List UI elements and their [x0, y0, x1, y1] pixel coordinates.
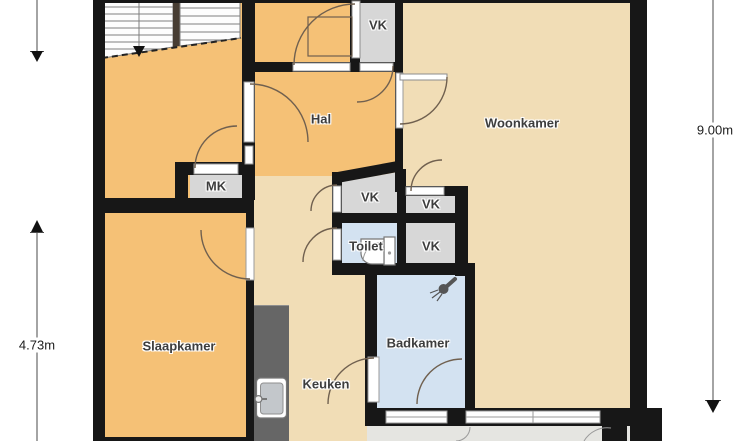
dimension-arrow-icon: [706, 400, 720, 413]
dimension-label-height: 9.00m: [695, 123, 735, 138]
room-label-toilet: Toilet: [349, 239, 383, 254]
dimension-arrow-icon: [31, 220, 43, 232]
room-label-woonkamer: Woonkamer: [485, 116, 559, 131]
room-label-hal: Hal: [311, 112, 331, 127]
badkamer-door: [368, 357, 379, 402]
stairs-hal-door: [244, 82, 254, 142]
vk-nw-door: [333, 186, 341, 212]
mk-door: [194, 164, 238, 174]
room-label-slaapkamer: Slaapkamer: [143, 339, 216, 354]
toilet-door: [333, 229, 341, 260]
room-label-mk: MK: [206, 179, 226, 194]
top-room-door: [293, 63, 350, 71]
slaapkamer-floor: [105, 213, 246, 441]
kitchen-sink-icon: [255, 378, 286, 418]
floor-plan-svg: [0, 0, 750, 441]
room-label-badkamer: Badkamer: [387, 336, 450, 351]
room-label-vk-ne: VK: [422, 197, 440, 212]
kitchen-counter: [254, 305, 289, 441]
room-label-vk-nw: VK: [361, 190, 379, 205]
room-label-vk-se: VK: [422, 239, 440, 254]
stairs-hal-sidelight: [245, 146, 253, 164]
vk-top-door: [360, 63, 393, 71]
window: [466, 411, 600, 423]
dimension-label-width: 4.73m: [17, 338, 57, 353]
slaapkamer-door: [246, 228, 254, 280]
dimension-arrow-icon: [31, 51, 43, 62]
floor-plan: Hal Woonkamer VK MK VK VK Toilet VK Slaa…: [0, 0, 750, 441]
room-label-vk-top: VK: [369, 18, 387, 33]
window: [386, 411, 447, 423]
hal-woonkamer-door: [396, 73, 403, 128]
room-label-keuken: Keuken: [303, 377, 350, 392]
